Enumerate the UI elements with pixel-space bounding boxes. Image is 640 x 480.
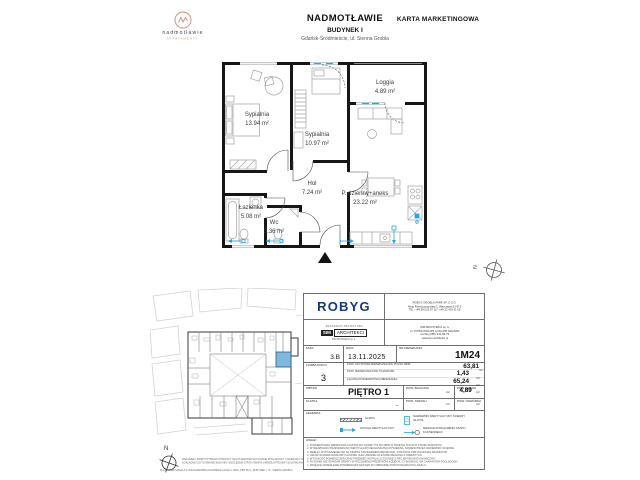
liczba-pokoi-value: 3: [304, 373, 343, 383]
architect-logo-cell: PRACOWNIA PROJEKTOWA SIM ARCHITEKCI SIM …: [304, 320, 385, 345]
faza-data-nr-row: FAZA 3.B DATA 13.11.2025 NR MIESZKANIA 1…: [304, 346, 484, 363]
developer-logo-cell: ROBYG: [304, 294, 385, 319]
legend-item-sciany: ŚCIANY: [340, 417, 384, 423]
pietro-value: PIĘTRO 1: [334, 387, 403, 397]
room-label-pokoj-dzienny: P. dzienny+aneks23.22 m²: [325, 190, 405, 207]
klatka-row: KLATKA - POW. TARASU m² POW. OGRÓDKA m²: [304, 399, 484, 411]
compass-north-label: N: [473, 265, 479, 269]
cell-pietro: PIĘTRO PIĘTRO 1: [304, 386, 404, 398]
cell-faza: FAZA 3.B: [304, 346, 344, 362]
uwagi-notes: 1. POWIERZCHNIA MIESZKANIA LICZONA WG NO…: [307, 444, 483, 480]
building-name: BUDYNEK I: [270, 27, 420, 34]
keyplan-caption: PLAN KONDYGNACJI Z OZNACZENIEM POŁOŻENIA…: [160, 469, 302, 475]
walls-swatch-icon: [340, 418, 362, 422]
brand-logo-icon: [174, 11, 192, 29]
uwagi-row: UWAGI: 1. POWIERZCHNIA MIESZKANIA LICZON…: [304, 438, 484, 469]
taras-value: m²: [446, 391, 452, 409]
cell-liczba-pokoi: LICZBA POKOI 3: [304, 363, 344, 385]
sim-logo: SIM ARCHITEKCI: [321, 329, 367, 337]
brand-subtitle-wrap: APARTAMENTY: [148, 37, 218, 43]
keyplan-svg: [150, 288, 302, 438]
legend-item-okap: MIEJSCE PODŁĄCZENIA OKAPU KUCHENNEGO: [404, 427, 500, 437]
cell-pow-ogrodka: POW. OGRÓDKA m²: [455, 399, 484, 410]
room-label-sypialnia-1: Sypialnia13.94 m²: [232, 111, 282, 128]
developer-info-cell: ROBYG GROBLA PARK SP. Z O.O. Aleja Rzecz…: [385, 294, 484, 319]
cell-nr-mieszkania: NR MIESZKANIA 1M24: [397, 346, 484, 362]
architect-info-cell: SIM ARCHITEKCI sp. k. ul. TOPOLOWA 8/9 L…: [385, 320, 484, 345]
brand-name: nadmotławie: [148, 30, 218, 36]
rooms-areas-row: LICZBA POKOI 3 POW. UŻYTKOWA MIESZKANIA …: [304, 363, 484, 386]
room-label-sypialnia-2: Sypialnia10.97 m²: [292, 131, 342, 148]
faza-value: 3.B: [330, 354, 340, 361]
pietro-row: PIĘTRO PIĘTRO 1 POW. BALKONU m² POW. LOG…: [304, 386, 484, 399]
info-table: ROBYG ROBYG GROBLA PARK SP. Z O.O. Aleja…: [303, 293, 485, 470]
entrance-marker-icon: [318, 252, 332, 263]
doc-type-label: KARTA MARKETINGOWA: [388, 16, 488, 23]
legend-row: LEGENDA ŚCIANY WYCIĄG WENTYLACYJNY: [304, 411, 484, 438]
architect-row: PRACOWNIA PROJEKTOWA SIM ARCHITEKCI SIM …: [304, 320, 484, 346]
marketing-card-canvas: nadmotławie APARTAMENTY NADMOTŁAWIE BUDY…: [0, 0, 640, 480]
developer-info: ROBYG GROBLA PARK SP. Z O.O. Aleja Rzecz…: [408, 301, 461, 312]
room-label-wc: Wc3.36 m²: [254, 219, 294, 236]
legend-item-nawiewnik: NAWIEWNIK WENTYLACYJNY ŚCIENNY GŁ.POŚ.: [404, 415, 508, 425]
robyg-logo: ROBYG: [317, 299, 371, 314]
cell-data: DATA 13.11.2025: [344, 346, 397, 362]
ogrodek-value: m²: [476, 391, 482, 409]
marketing-card-page: nadmotławie APARTAMENTY NADMOTŁAWIE BUDY…: [88, 8, 512, 472]
area-row-scianki: POW. MIESZKANIA POD ŚCIANKAMI: 1,43 m²: [344, 370, 484, 377]
highlighted-unit: [276, 352, 291, 367]
exhaust-vent-icon: [340, 427, 357, 433]
building-address: Gdańsk-Śródmieście, ul. Sienna Grobla: [270, 36, 420, 42]
nr-value: 1M24: [455, 350, 480, 361]
cell-klatka: KLATKA -: [304, 399, 404, 410]
room-label-loggia: Loggia4.89 m²: [360, 79, 410, 96]
data-value: 13.11.2025: [348, 354, 386, 361]
klatka-value: -: [396, 403, 398, 409]
cell-pow-tarasu: POW. TARASU m²: [404, 399, 455, 410]
compass-icon: [480, 258, 506, 284]
sim-logo-top: PRACOWNIA PROJEKTOWA: [325, 325, 362, 328]
sim-logo-bottom: SIM ARCHITEKCI sp. k.: [332, 338, 356, 341]
cooker-hood-icon: [404, 429, 420, 436]
brand-subtitle: APARTAMENTY: [167, 37, 199, 41]
architect-info: SIM ARCHITEKCI sp. k. ul. TOPOLOWA 8/9 L…: [410, 325, 459, 339]
air-inlet-icon: [404, 416, 410, 425]
developer-row: ROBYG ROBYG GROBLA PARK SP. Z O.O. Aleja…: [304, 294, 484, 320]
